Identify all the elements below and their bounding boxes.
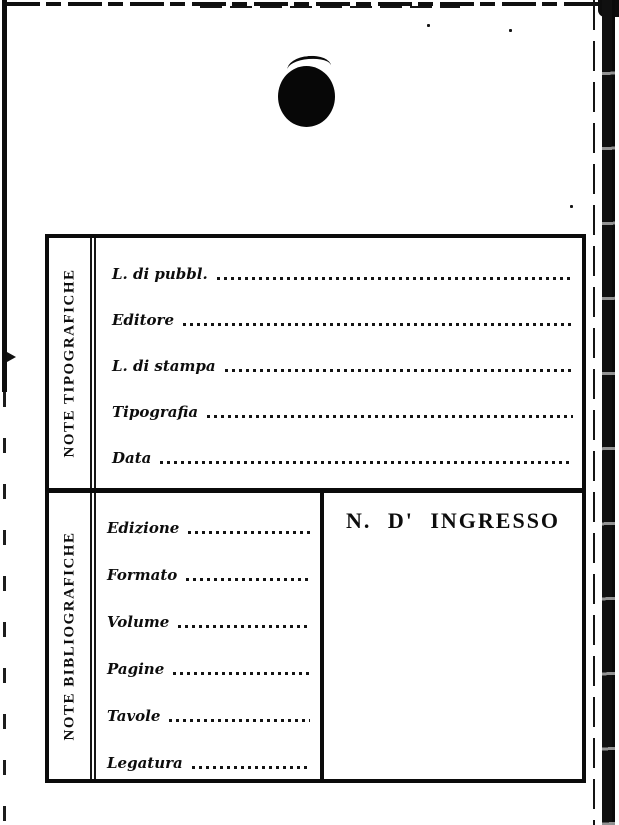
dotted-blank-line xyxy=(178,625,310,628)
scan-speck xyxy=(570,205,573,208)
field-formato: Formato xyxy=(107,537,310,584)
dotted-blank-line xyxy=(192,766,310,769)
dotted-blank-line xyxy=(173,672,310,675)
field-label: L. di pubbl. xyxy=(112,267,208,283)
ingresso-heading: N. D' INGRESSO xyxy=(346,508,560,533)
scan-artifact-left-tick xyxy=(7,352,16,362)
scan-artifact-right-edge-line xyxy=(593,0,595,825)
scanned-catalog-card-page: NOTE TIPOGRAFICHE L. di pubbl. Editore L… xyxy=(0,0,619,825)
fields-bibliografiche: Edizione Formato Volume Pagine Tavole xyxy=(96,493,320,779)
catalog-card-table: NOTE TIPOGRAFICHE L. di pubbl. Editore L… xyxy=(45,234,586,783)
dotted-blank-line xyxy=(183,323,573,326)
section-note-tipografiche: NOTE TIPOGRAFICHE L. di pubbl. Editore L… xyxy=(49,238,582,488)
field-edizione: Edizione xyxy=(107,493,310,537)
field-editore: Editore xyxy=(112,283,573,329)
fields-tipografiche: L. di pubbl. Editore L. di stampa Tipogr… xyxy=(96,238,582,488)
section-note-bibliografiche: NOTE BIBLIOGRAFICHE Edizione Formato Vol… xyxy=(49,493,582,779)
field-label: Editore xyxy=(112,313,174,329)
field-label: Volume xyxy=(107,615,169,631)
field-label: Pagine xyxy=(107,662,164,678)
field-l-di-stampa: L. di stampa xyxy=(112,329,573,375)
field-label: Tipografia xyxy=(112,405,198,421)
punch-hole xyxy=(278,66,335,127)
dotted-blank-line xyxy=(169,719,310,722)
side-label-tipografiche: NOTE TIPOGRAFICHE xyxy=(61,269,78,458)
side-label-bibliografiche: NOTE BIBLIOGRAFICHE xyxy=(61,532,78,741)
field-label: Formato xyxy=(107,568,177,584)
ingresso-box: N. D' INGRESSO xyxy=(324,493,582,779)
field-l-di-pubbl: L. di pubbl. xyxy=(112,238,573,283)
field-pagine: Pagine xyxy=(107,631,310,678)
field-legatura: Legatura xyxy=(107,725,310,772)
field-volume: Volume xyxy=(107,584,310,631)
scan-artifact-right-edge-band xyxy=(602,0,615,825)
scan-speck xyxy=(509,29,512,32)
dotted-blank-line xyxy=(160,461,573,464)
dotted-blank-line xyxy=(225,369,573,372)
field-label: L. di stampa xyxy=(112,359,216,375)
scan-artifact-left-edge-dashes xyxy=(3,392,6,825)
field-label: Data xyxy=(112,451,151,467)
dotted-blank-line xyxy=(207,415,573,418)
field-data: Data xyxy=(112,421,573,467)
field-label: Tavole xyxy=(107,709,160,725)
side-label-strip-tipografiche: NOTE TIPOGRAFICHE xyxy=(49,238,96,488)
field-label: Edizione xyxy=(107,521,179,537)
dotted-blank-line xyxy=(217,277,573,280)
scan-artifact-left-edge-line xyxy=(2,0,7,392)
field-tavole: Tavole xyxy=(107,678,310,725)
side-label-strip-bibliografiche: NOTE BIBLIOGRAFICHE xyxy=(49,493,96,779)
dotted-blank-line xyxy=(188,531,310,534)
scan-artifact-top-edge-line2 xyxy=(200,6,460,8)
dotted-blank-line xyxy=(186,578,310,581)
field-label: Legatura xyxy=(107,756,183,772)
scan-speck xyxy=(427,24,430,27)
field-tipografia: Tipografia xyxy=(112,375,573,421)
